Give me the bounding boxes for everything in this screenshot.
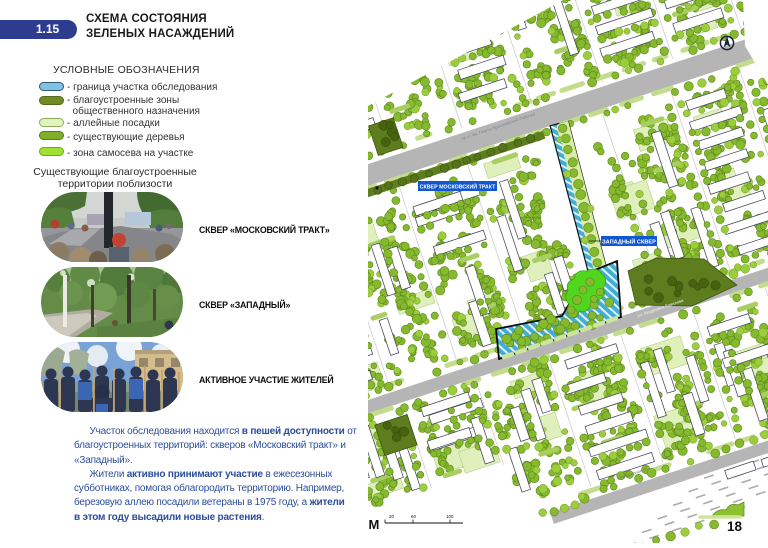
svg-text:100: 100 [446, 514, 454, 519]
svg-text:М: М [369, 517, 380, 532]
svg-text:18: 18 [727, 519, 743, 534]
svg-text:20: 20 [389, 514, 395, 519]
svg-text:60: 60 [411, 514, 417, 519]
svg-text:ЗАПАДНЫЙ СКВЕР: ЗАПАДНЫЙ СКВЕР [602, 237, 656, 245]
svg-text:СКВЕР МОСКОВСКИЙ ТРАКТ: СКВЕР МОСКОВСКИЙ ТРАКТ [420, 182, 496, 190]
